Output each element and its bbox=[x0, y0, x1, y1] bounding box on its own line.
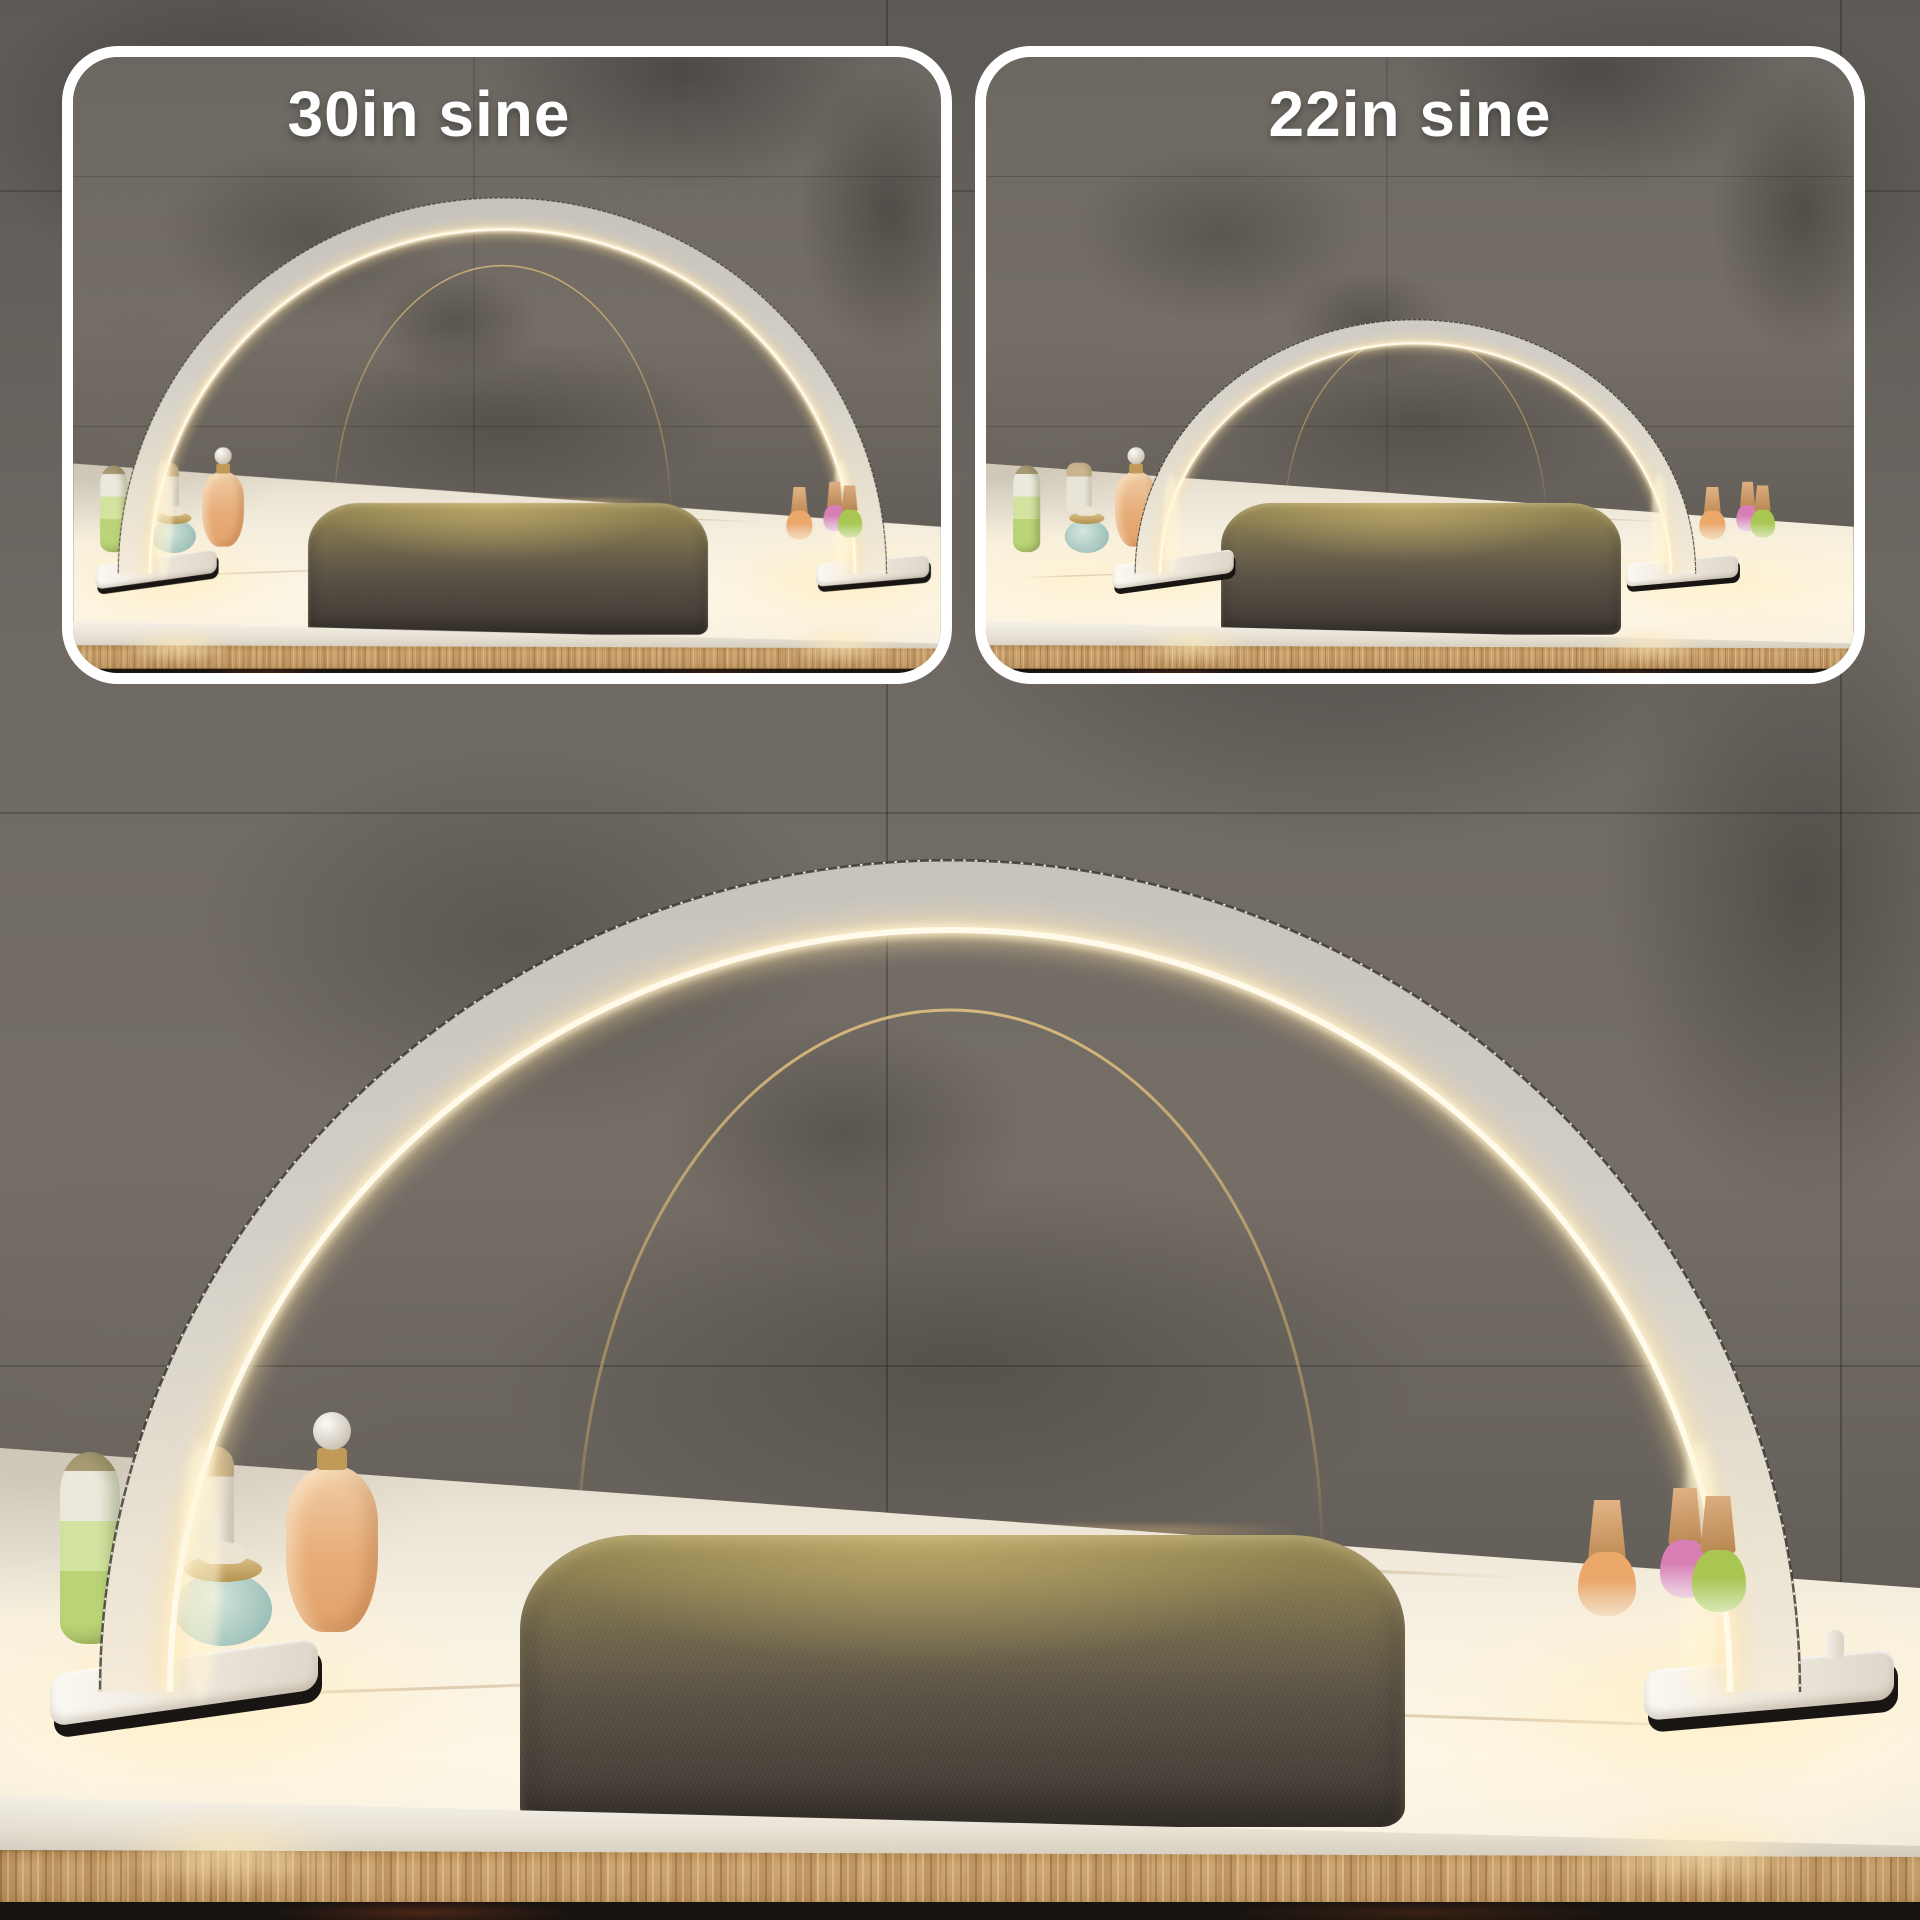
cream-jar-dome bbox=[200, 1542, 246, 1564]
nail-polish-cap-green bbox=[1700, 1496, 1736, 1554]
product-photo-canvas: 30in sine bbox=[0, 0, 1920, 1920]
panel-label-30in: 30in sine bbox=[73, 79, 863, 149]
nail-polish-orange bbox=[1699, 511, 1725, 540]
perfume-bottle-green bbox=[60, 1452, 120, 1644]
perfume-crystal-stopper bbox=[1127, 447, 1144, 464]
counter-edge-glow-left bbox=[100, 617, 254, 672]
size-comparison-panel-30in: 30in sine bbox=[62, 46, 952, 684]
cream-jar-dome bbox=[1076, 506, 1097, 516]
perfume-bottle-peach bbox=[286, 1466, 378, 1632]
nail-polish-cap-green bbox=[1754, 485, 1770, 511]
tile-seam bbox=[0, 1365, 1920, 1367]
nail-polish-cap-pink bbox=[1740, 482, 1755, 508]
perfume-crystal-stopper bbox=[313, 1412, 351, 1450]
nail-polish-cap-orange bbox=[1588, 1500, 1626, 1560]
nail-polish-green bbox=[838, 510, 862, 538]
counter-edge-glow-right bbox=[1530, 1788, 1870, 1910]
perfume-bottle-peach bbox=[1115, 472, 1157, 547]
tile-seam bbox=[73, 426, 941, 427]
perfume-bottle-neck bbox=[216, 463, 230, 473]
panel-label-22in: 22in sine bbox=[986, 79, 1844, 149]
nail-polish-orange bbox=[1578, 1552, 1636, 1616]
tile-seam bbox=[0, 812, 1920, 814]
cream-jar-teal bbox=[1065, 520, 1109, 553]
perfume-crystal-stopper bbox=[214, 447, 231, 464]
lamp-power-knob bbox=[1826, 1630, 1844, 1660]
nail-polish-cap-pink bbox=[1668, 1488, 1702, 1546]
tile-seam bbox=[986, 426, 1854, 427]
panel-viewport: 22in sine bbox=[986, 57, 1854, 673]
tile-seam bbox=[73, 176, 941, 177]
nail-polish-cap-green bbox=[841, 485, 857, 511]
nail-polish-green bbox=[1692, 1550, 1746, 1612]
hand-rest-cushion bbox=[520, 1535, 1405, 1827]
panel-viewport: 30in sine bbox=[73, 57, 941, 673]
hand-rest-cushion bbox=[1221, 503, 1621, 635]
hand-rest-cushion bbox=[308, 503, 708, 635]
perfume-bottle-green bbox=[100, 465, 127, 552]
perfume-bottle-neck bbox=[1129, 463, 1143, 473]
perfume-bottle-green bbox=[1013, 465, 1040, 552]
nail-polish-cap-pink bbox=[827, 482, 842, 508]
counter-edge-glow-right bbox=[1574, 617, 1728, 672]
perfume-bottle-neck bbox=[317, 1448, 347, 1470]
counter-edge-glow-right bbox=[765, 617, 919, 672]
cream-jar-teal bbox=[174, 1572, 272, 1646]
cream-jar-dome bbox=[163, 506, 184, 516]
size-comparison-panel-22in: 22in sine bbox=[975, 46, 1865, 684]
counter-edge-glow-left bbox=[60, 1788, 400, 1910]
tile-seam bbox=[986, 176, 1854, 177]
nail-polish-green bbox=[1751, 510, 1775, 538]
nail-polish-orange bbox=[786, 511, 812, 540]
cream-jar-teal bbox=[152, 520, 196, 553]
counter-edge-glow-left bbox=[1117, 617, 1271, 672]
perfume-bottle-peach bbox=[202, 472, 244, 547]
